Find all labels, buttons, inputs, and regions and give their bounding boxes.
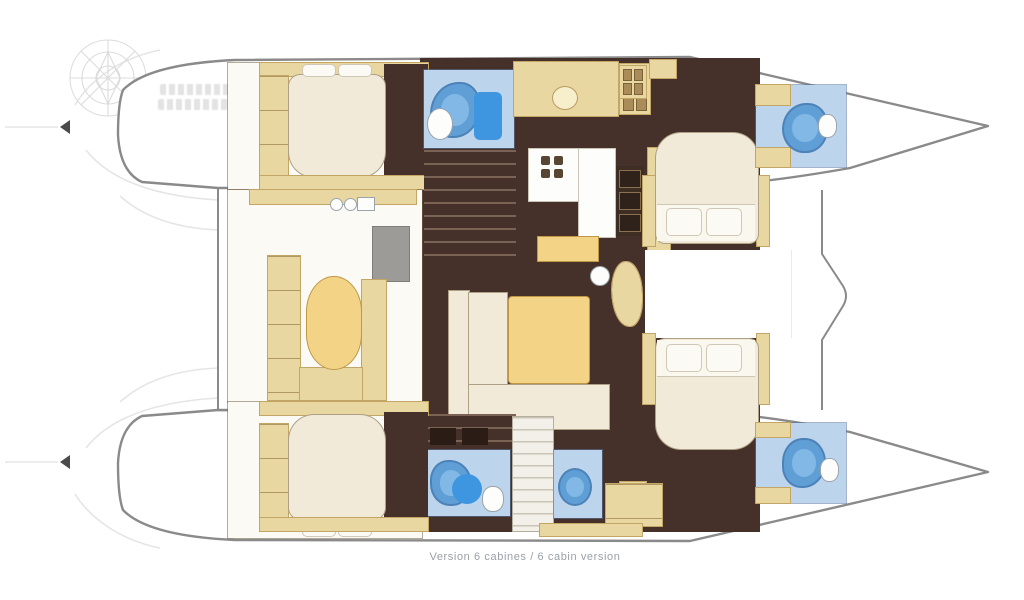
bathroom-vanity (756, 488, 790, 503)
left-arrow-icon (60, 120, 70, 134)
cabin-foot-shelf (260, 176, 428, 189)
pillow (666, 208, 702, 236)
appliance-icon (619, 192, 641, 210)
fridge-column (616, 166, 644, 236)
pillow (302, 64, 336, 77)
stove-burner-icon (541, 156, 550, 165)
lounge-bench-right (362, 280, 386, 400)
step-mark (462, 428, 488, 445)
shower-icon (452, 474, 482, 504)
cabin-floor-access (384, 64, 428, 186)
cabin-headboard-shelf (260, 518, 428, 531)
bathroom-vanity (756, 85, 790, 105)
appliance-icon (619, 214, 641, 232)
cabin-floor-access (384, 412, 428, 522)
galley-counter-arm (578, 148, 616, 238)
pillow (338, 64, 372, 77)
pillow (666, 344, 702, 372)
toilet-icon (820, 458, 839, 482)
hull-side-locker (540, 524, 642, 536)
bed-side-rail (643, 176, 655, 246)
shower-icon (558, 468, 592, 506)
cabinet (606, 484, 662, 526)
sink-icon (552, 86, 578, 110)
stool (590, 266, 610, 286)
chart-desk (372, 226, 410, 282)
stairwell (512, 416, 554, 532)
step-mark (430, 428, 456, 445)
double-bed (288, 74, 386, 178)
companionway-steps (424, 150, 516, 256)
forward-beam-line (822, 190, 846, 410)
toilet-icon (482, 486, 504, 512)
catamaran-floorplan: Version 6 cabines / 6 cabin version (0, 0, 1024, 600)
nav-desk (537, 236, 599, 262)
stove-burner-icon (554, 156, 563, 165)
bathroom-vanity (756, 148, 790, 167)
dresser (620, 66, 646, 98)
sink-icon (427, 108, 453, 140)
stove-burner-icon (554, 169, 563, 178)
pillow (706, 344, 742, 372)
galley-locker (650, 60, 676, 78)
caption: Version 6 cabines / 6 cabin version (300, 551, 750, 563)
lounge-bench-left (268, 256, 300, 400)
pillow (706, 208, 742, 236)
saloon-table (508, 296, 590, 384)
sink-icon (344, 198, 357, 211)
double-bed (288, 414, 386, 520)
sink-icon (330, 198, 343, 211)
oval-table (306, 276, 362, 370)
lounge-bench-foot (300, 368, 362, 400)
drainer-icon (357, 197, 375, 211)
seat-curved (612, 262, 642, 326)
appliance-icon (619, 170, 641, 188)
stove-burner-icon (541, 169, 550, 178)
shower-icon (474, 92, 502, 140)
bathroom-vanity (756, 423, 790, 437)
cabin-side-lockers (260, 424, 288, 518)
toilet-icon (818, 114, 837, 138)
forward-cockpit (645, 250, 791, 338)
left-arrow-icon (60, 455, 70, 469)
cabin-side-lockers (260, 76, 288, 176)
bed-side-rail (643, 334, 655, 404)
